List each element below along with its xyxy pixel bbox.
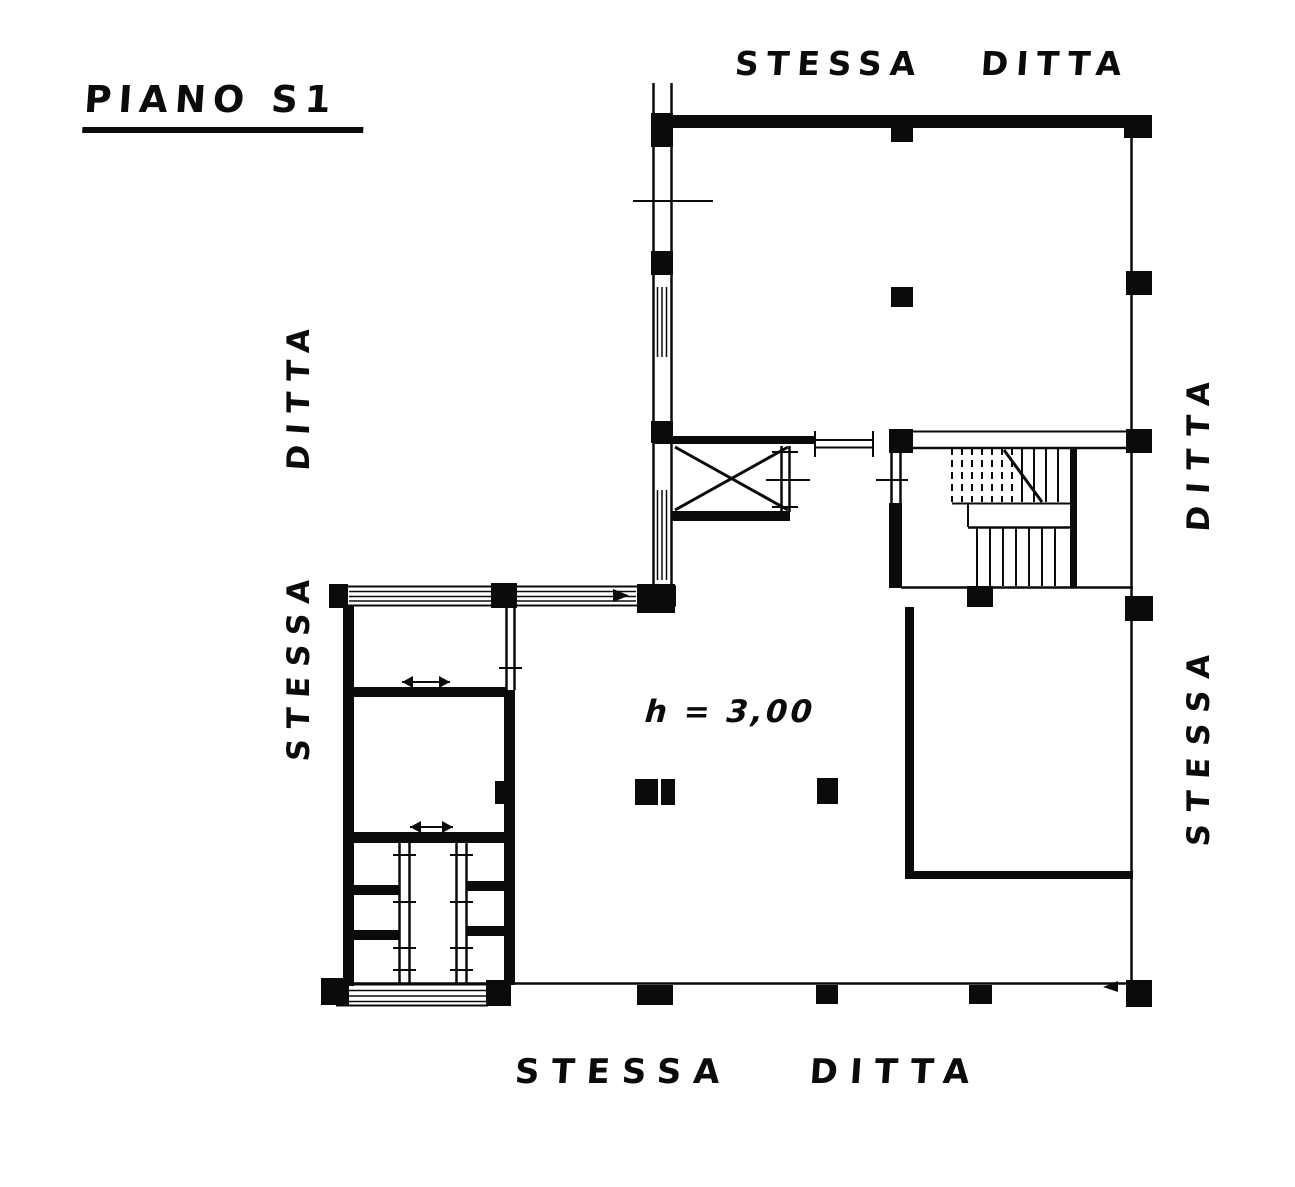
lower-right-room xyxy=(905,607,1133,879)
bottom-annotation: STESSADITTA xyxy=(514,1052,983,1092)
bottom-annotation-word1: STESSA xyxy=(514,1052,733,1092)
right-annotation: STESSA DITTA xyxy=(1181,368,1217,847)
top-exterior-wall xyxy=(651,113,1152,147)
top-annotation: STESSA DITTA xyxy=(734,44,1131,83)
ceiling-height-note: h = 3,00 xyxy=(644,694,817,730)
central-columns xyxy=(635,778,838,805)
floor-plan-drawing xyxy=(0,0,1295,1187)
service-block xyxy=(329,583,675,986)
bottom-exterior-wall xyxy=(321,978,1150,1006)
left-exterior-wall xyxy=(633,83,713,613)
elevator-shaft xyxy=(655,436,815,521)
corridor-opening xyxy=(815,429,913,588)
stairwell xyxy=(901,432,1133,608)
left-annotation: STESSA DITTA xyxy=(281,317,317,762)
floor-plan-canvas: PIANO S1 STESSA DITTA STESSA DITTA STESS… xyxy=(0,0,1295,1187)
bottom-annotation-word2: DITTA xyxy=(808,1052,983,1092)
page-title: PIANO S1 xyxy=(82,78,367,133)
upper-room-column xyxy=(891,287,913,307)
